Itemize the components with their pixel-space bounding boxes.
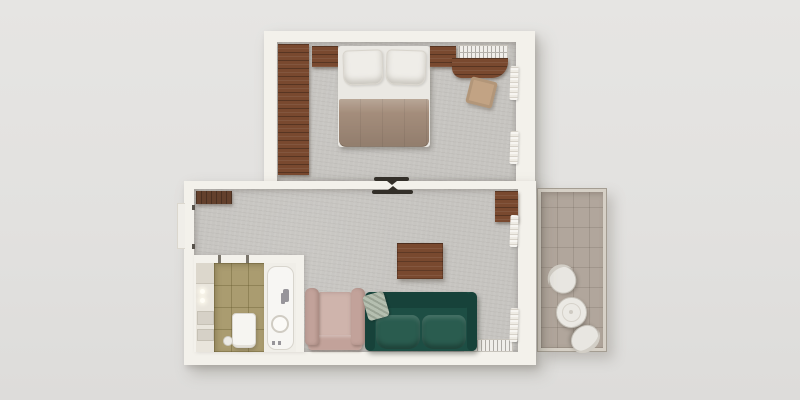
bathtub [267,266,294,350]
entry-door-hinge-icon [192,205,195,210]
armchair-arm-left [305,288,319,345]
toilet-brush-icon [223,336,233,346]
bedroom-curtain-top [509,66,518,100]
vanity-shelf [197,311,214,325]
vanity-lamp-icon [200,298,205,303]
bathroom-room [194,255,304,352]
ottoman [465,76,498,109]
toilet [232,313,256,348]
tub-fittings-icon [272,341,284,345]
living-door-leaf [372,190,413,194]
entry-door-hinge-icon [192,244,195,249]
sofa [365,292,477,351]
sofa-arm-right [467,292,477,351]
vanity-cabinet [196,263,214,284]
nightstand-left [312,46,338,67]
pillow-left [342,49,383,85]
bedroom-carpet-floor [277,42,516,181]
pillow-right [385,49,426,85]
dining-table [397,243,443,279]
bedroom-desk [452,58,508,78]
living-room [184,181,536,365]
living-curtain-top [509,215,518,247]
bathroom-vanity [196,263,215,352]
armchair [305,288,365,351]
floor-plan-render [0,0,800,400]
wardrobe [278,44,309,175]
armchair-seat [318,292,352,339]
faucet-icon [283,289,289,302]
bathroom-door-jamb-right [246,255,249,263]
bathtub-zone [264,263,296,352]
bed-blanket [339,99,429,147]
balcony-area [537,188,607,352]
bedroom-curtain-bottom [509,131,518,164]
sofa-cushion-right [422,315,466,349]
ac-vent [458,45,508,59]
console-cabinet [196,191,232,204]
bedroom-door-leaf [374,177,409,181]
vanity-shelf [197,329,214,341]
entry-door-recess [177,203,185,249]
bedroom-room [264,31,535,189]
living-curtain-bottom [509,308,518,342]
vanity-lamp-icon [200,289,205,294]
drain-icon [271,315,289,333]
double-bed [338,46,430,147]
sofa-cushion-left [376,315,420,349]
bathroom-door-jamb-left [218,255,221,263]
